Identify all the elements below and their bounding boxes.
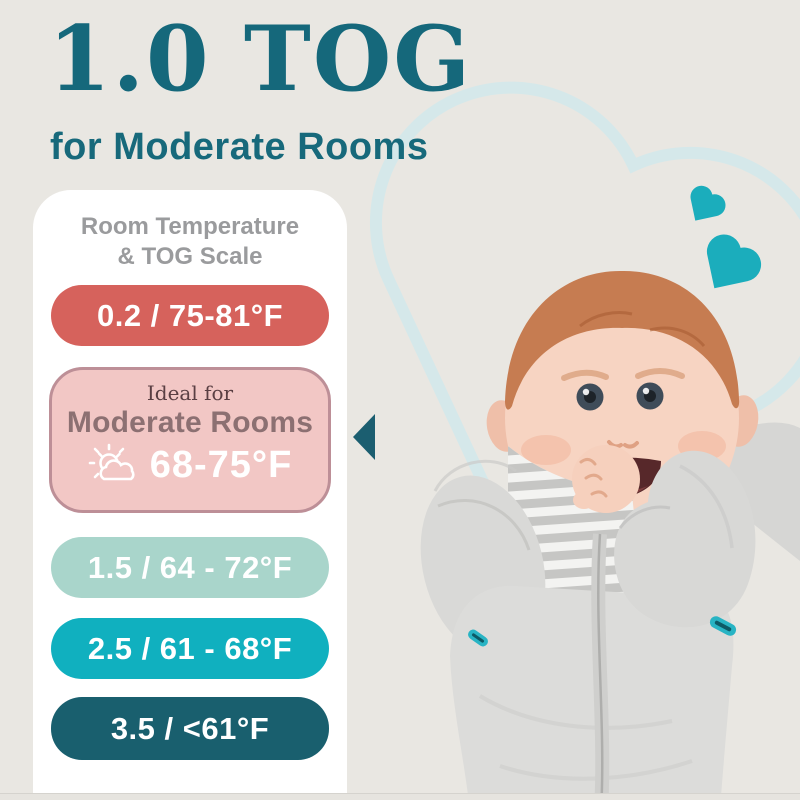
card-heading: Room Temperature & TOG Scale	[33, 212, 347, 272]
ideal-temp-label: 68-75°F	[150, 444, 293, 487]
page-subtitle: for Moderate Rooms	[50, 126, 428, 169]
card-heading-line1: Room Temperature	[33, 212, 347, 242]
tog-pill-1-5: 1.5 / 64 - 72°F	[51, 537, 329, 598]
ideal-eyebrow: Ideal for	[52, 381, 328, 405]
baby-photo	[403, 271, 800, 800]
large-heart-icon	[704, 228, 764, 288]
card-heading-line2: & TOG Scale	[33, 242, 347, 272]
surface-edge	[0, 793, 800, 800]
ideal-pointer-arrow-icon	[353, 414, 375, 460]
tog-pill-2-5: 2.5 / 61 - 68°F	[51, 618, 329, 679]
ideal-range-box: Ideal for Moderate Rooms 68-75°F	[49, 367, 331, 513]
ideal-room-label: Moderate Rooms	[52, 406, 328, 440]
tog-pill-3-5: 3.5 / <61°F	[51, 697, 329, 760]
tog-pill-0-2: 0.2 / 75-81°F	[51, 285, 329, 346]
page-title: 1.0 TOG	[48, 14, 472, 104]
tog-scale-card: Room Temperature & TOG Scale 0.2 / 75-81…	[33, 190, 347, 800]
small-heart-icon	[688, 181, 727, 220]
sun-behind-cloud-icon	[88, 443, 140, 487]
